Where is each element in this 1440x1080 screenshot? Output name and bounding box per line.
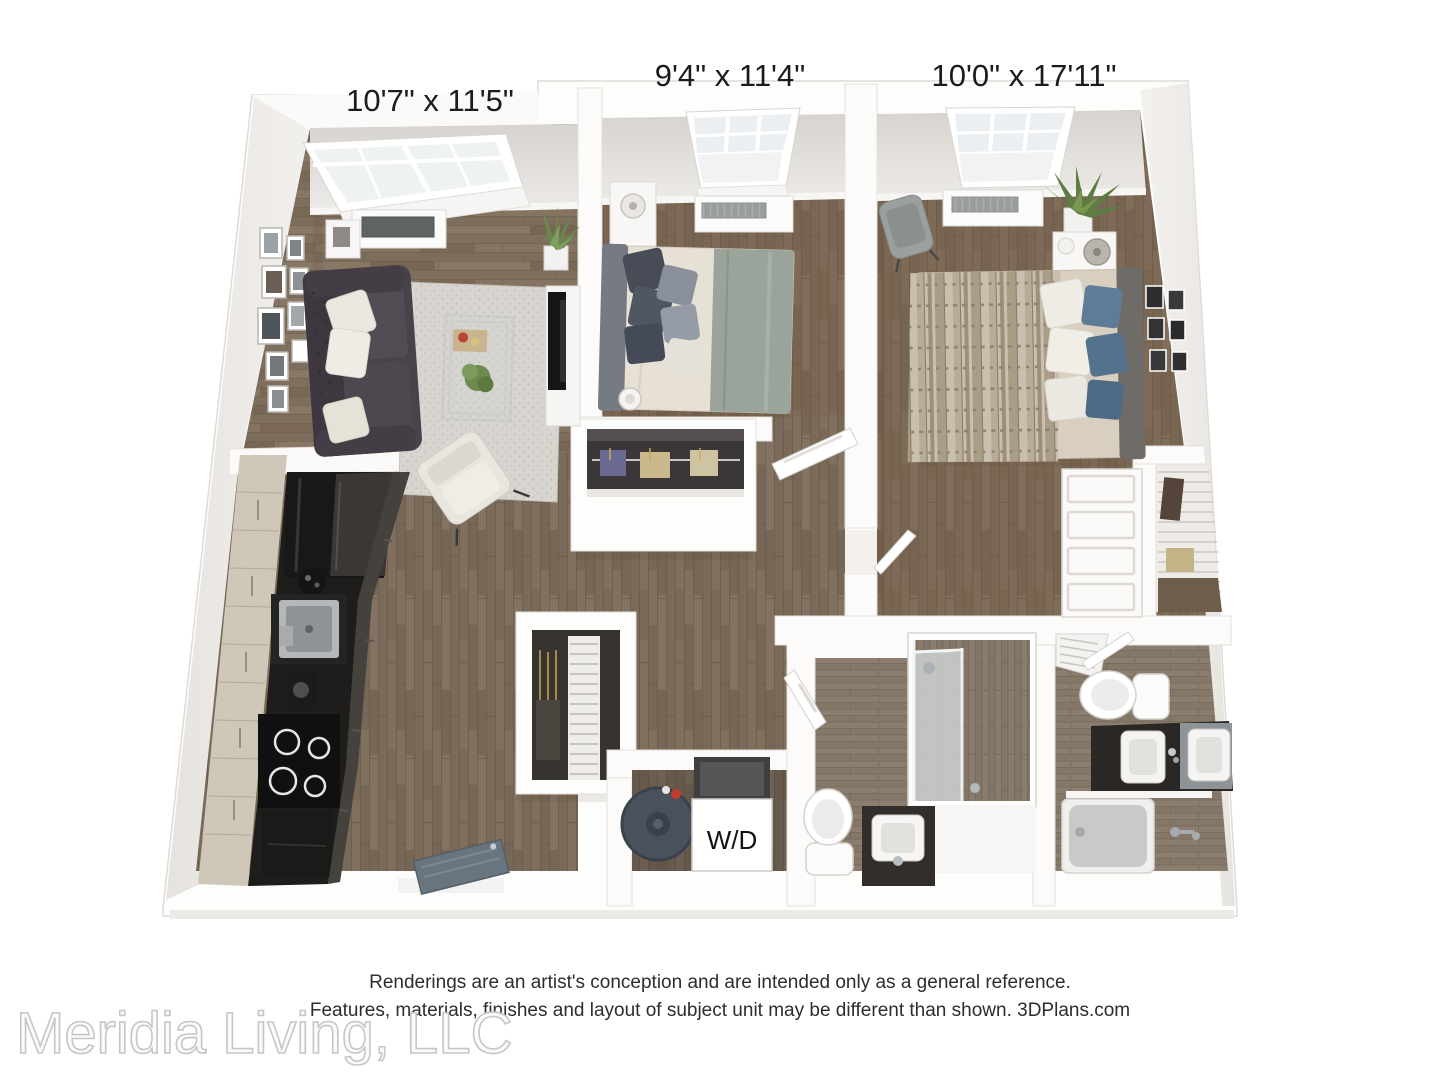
svg-text:10'7" x 11'5": 10'7" x 11'5" [346,83,514,118]
svg-text:Meridia Living, LLC: Meridia Living, LLC [16,1001,512,1066]
svg-text:Renderings are an artist's con: Renderings are an artist's conception an… [369,972,1071,993]
svg-text:10'0" x 17'11": 10'0" x 17'11" [932,58,1117,93]
svg-text:9'4" x 11'4": 9'4" x 11'4" [655,58,805,93]
svg-text:W/D: W/D [707,825,758,855]
